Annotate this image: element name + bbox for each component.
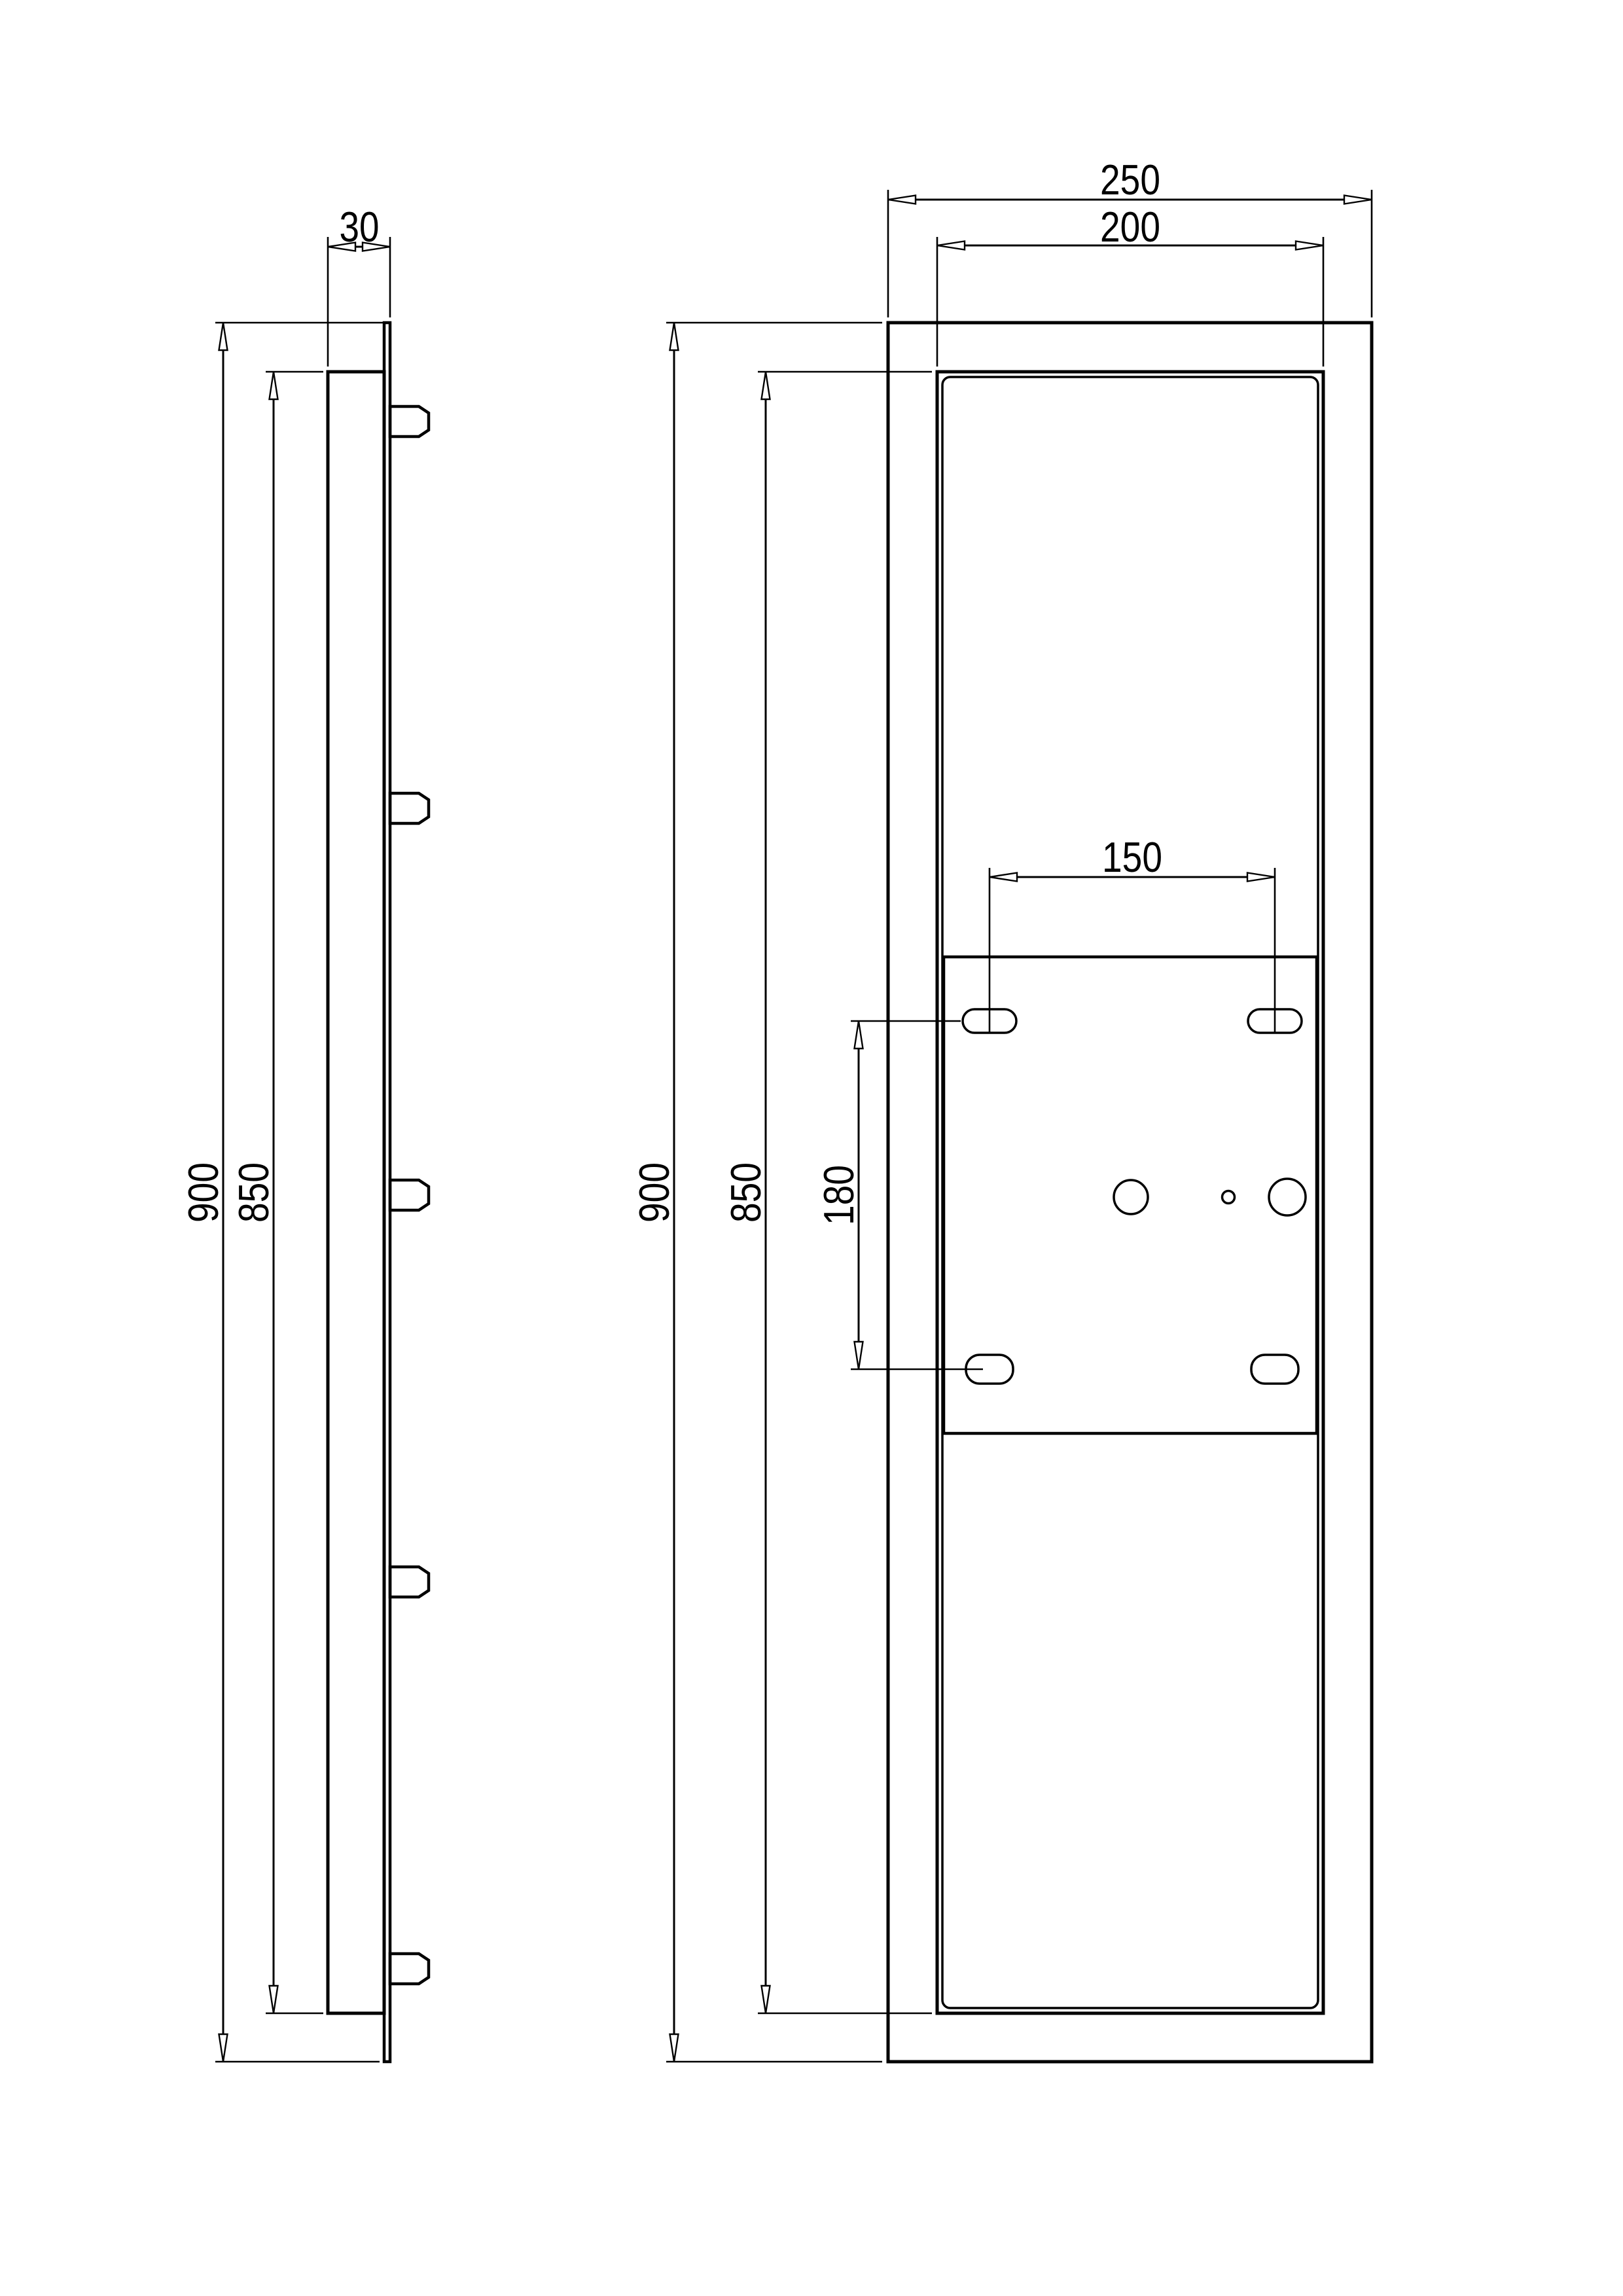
- dim-label-side-depth: 30: [340, 203, 380, 251]
- dim-label-slot-spacing-vertical: 180: [815, 1165, 863, 1225]
- dim-label-front-inner-width: 200: [1100, 203, 1160, 251]
- dim-label-front-inner-height: 850: [722, 1162, 770, 1223]
- dim-label-front-outer-height: 900: [630, 1162, 678, 1223]
- technical-drawing-sheet: 30 900 850: [0, 0, 1623, 2296]
- dim-label-slot-spacing-horizontal: 150: [1102, 833, 1162, 881]
- sheet-background: [0, 0, 1623, 2296]
- dim-label-front-outer-width: 250: [1100, 156, 1160, 204]
- dim-label-side-inner-height: 850: [230, 1162, 277, 1223]
- dim-label-side-outer-height: 900: [179, 1162, 227, 1223]
